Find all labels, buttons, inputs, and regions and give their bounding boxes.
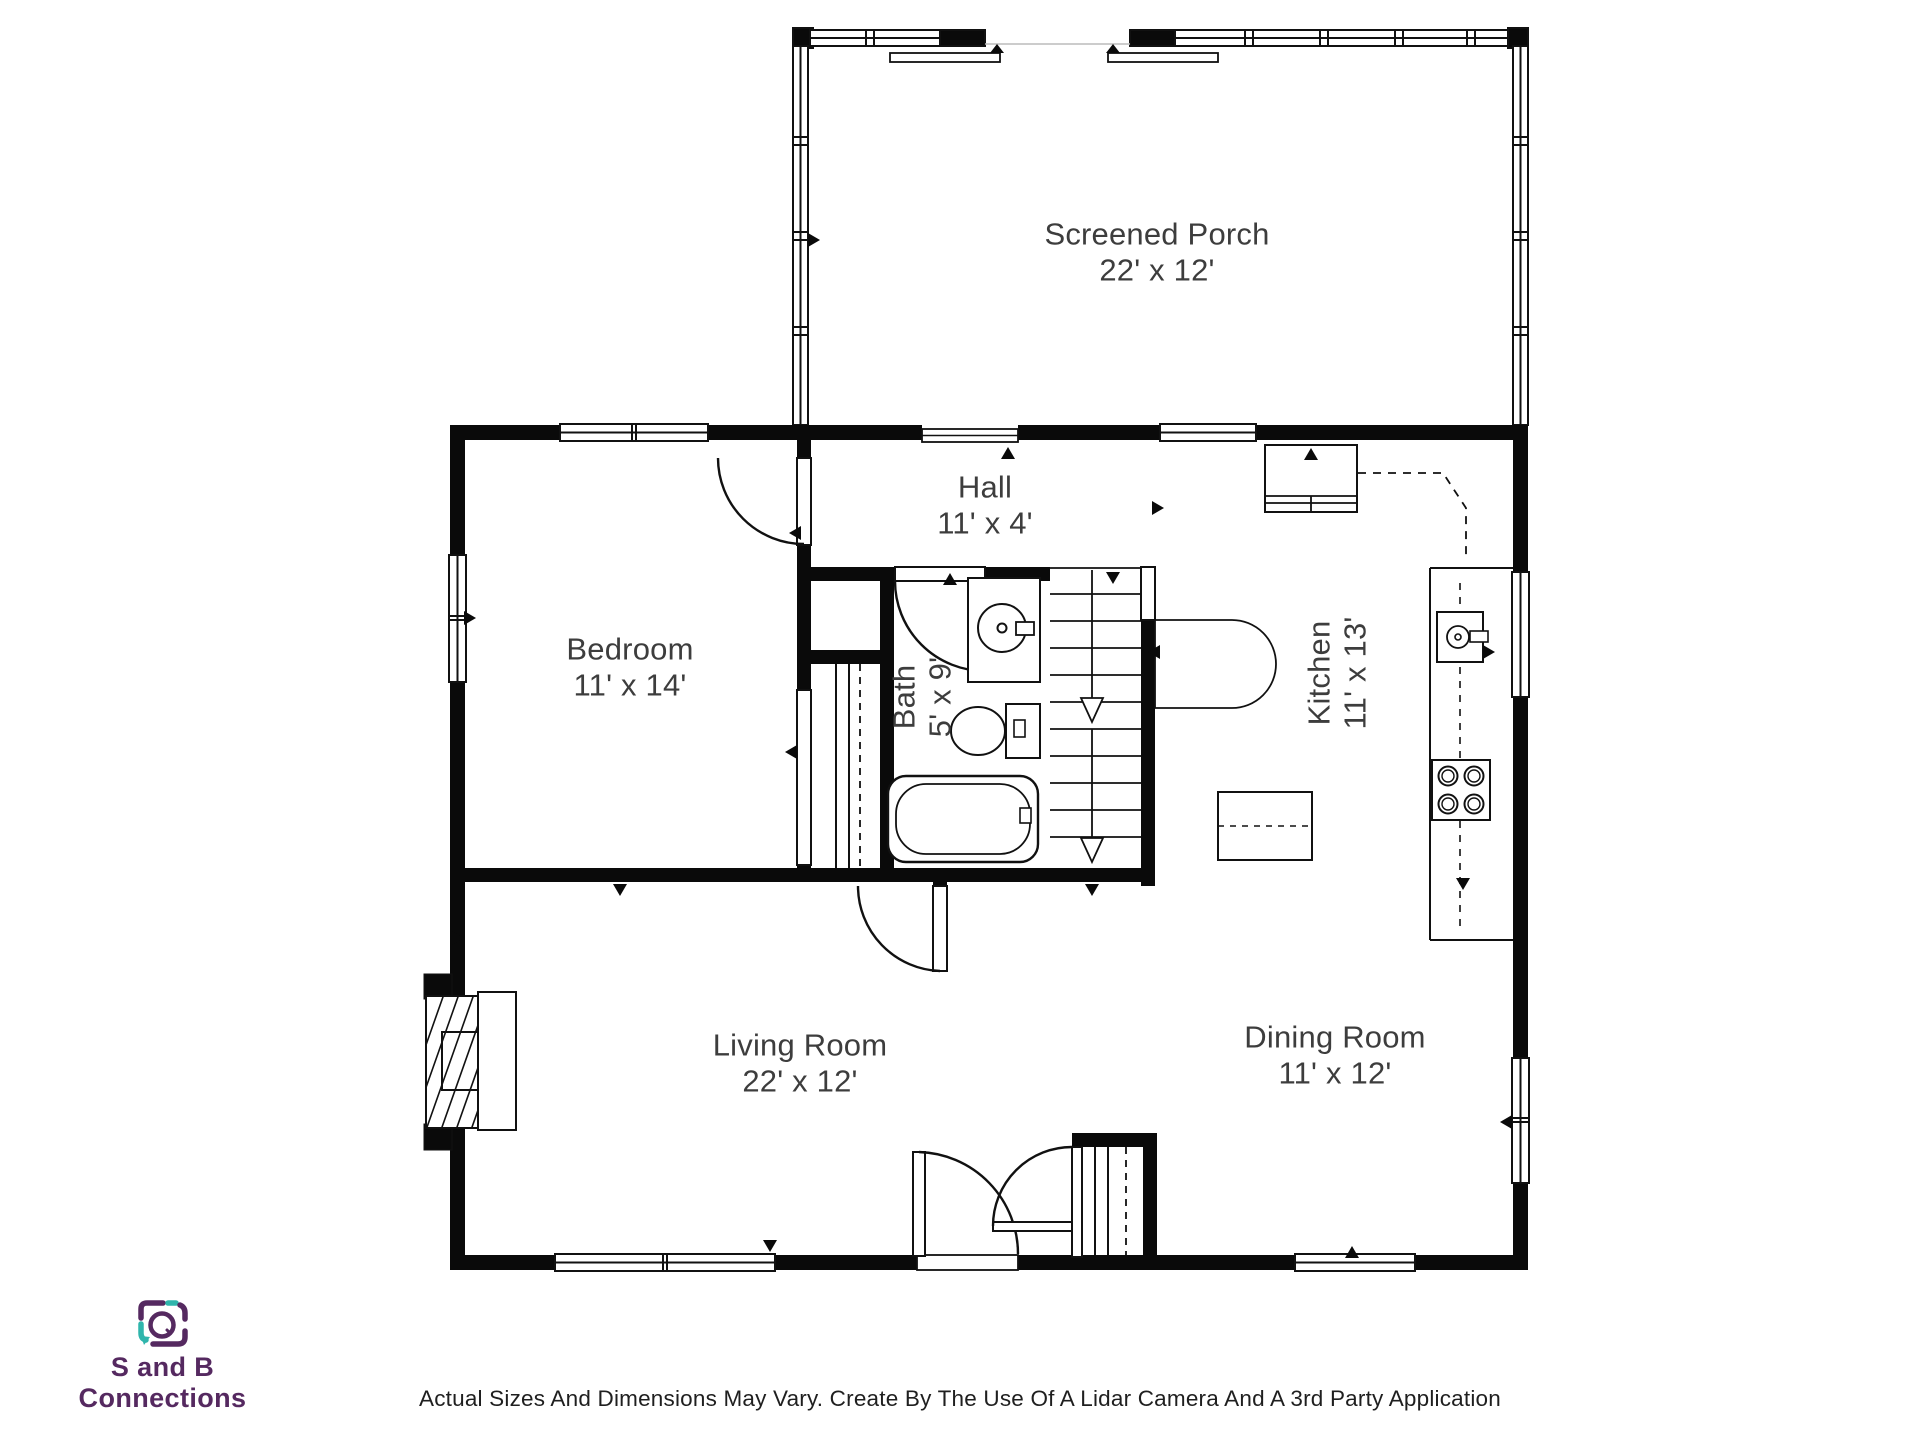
camera-icon — [127, 1296, 199, 1350]
stairs — [1050, 567, 1155, 862]
room-dims: 22' x 12' — [1044, 252, 1269, 288]
bedroom-closet-slider — [797, 690, 811, 865]
toilet — [951, 704, 1040, 758]
bath-sink — [968, 578, 1040, 682]
front-door — [913, 1152, 1018, 1270]
room-label-living-room: Living Room 22' x 12' — [713, 1027, 888, 1098]
room-label-kitchen: Kitchen 11' x 13' — [1301, 616, 1372, 729]
stove — [1432, 760, 1490, 820]
fireplace — [396, 974, 519, 1150]
room-label-bedroom: Bedroom 11' x 14' — [566, 631, 693, 702]
room-dims: 5' x 9' — [922, 657, 958, 737]
room-dims: 11' x 4' — [937, 505, 1033, 541]
bathtub — [888, 776, 1038, 862]
room-name: Kitchen — [1301, 616, 1337, 729]
room-dims: 11' x 12' — [1244, 1055, 1425, 1091]
kitchen-table — [1155, 620, 1276, 708]
bedroom-closet — [836, 664, 860, 868]
dining-closet-door — [993, 1147, 1072, 1231]
room-label-hall: Hall 11' x 4' — [937, 469, 1033, 540]
room-name: Dining Room — [1244, 1019, 1425, 1055]
room-dims: 22' x 12' — [713, 1063, 888, 1099]
dining-closet — [1072, 1147, 1126, 1257]
floorplan-drawing — [0, 0, 1920, 1440]
room-dims: 11' x 13' — [1337, 616, 1373, 729]
kitchen-sink — [1437, 612, 1488, 662]
room-name: Bath — [886, 657, 922, 737]
room-dims: 11' x 14' — [566, 667, 693, 703]
upper-cabinets-dashed — [1358, 473, 1466, 556]
room-name: Bedroom — [566, 631, 693, 667]
room-label-screened-porch: Screened Porch 22' x 12' — [1044, 216, 1269, 287]
room-name: Screened Porch — [1044, 216, 1269, 252]
room-name: Living Room — [713, 1027, 888, 1063]
living-room-door — [858, 886, 947, 971]
room-name: Hall — [937, 469, 1033, 505]
room-label-dining-room: Dining Room 11' x 12' — [1244, 1019, 1425, 1090]
disclaimer-text: Actual Sizes And Dimensions May Vary. Cr… — [0, 1386, 1920, 1412]
kitchen-cabinet — [1218, 792, 1312, 860]
room-label-bath: Bath 5' x 9' — [886, 657, 957, 737]
